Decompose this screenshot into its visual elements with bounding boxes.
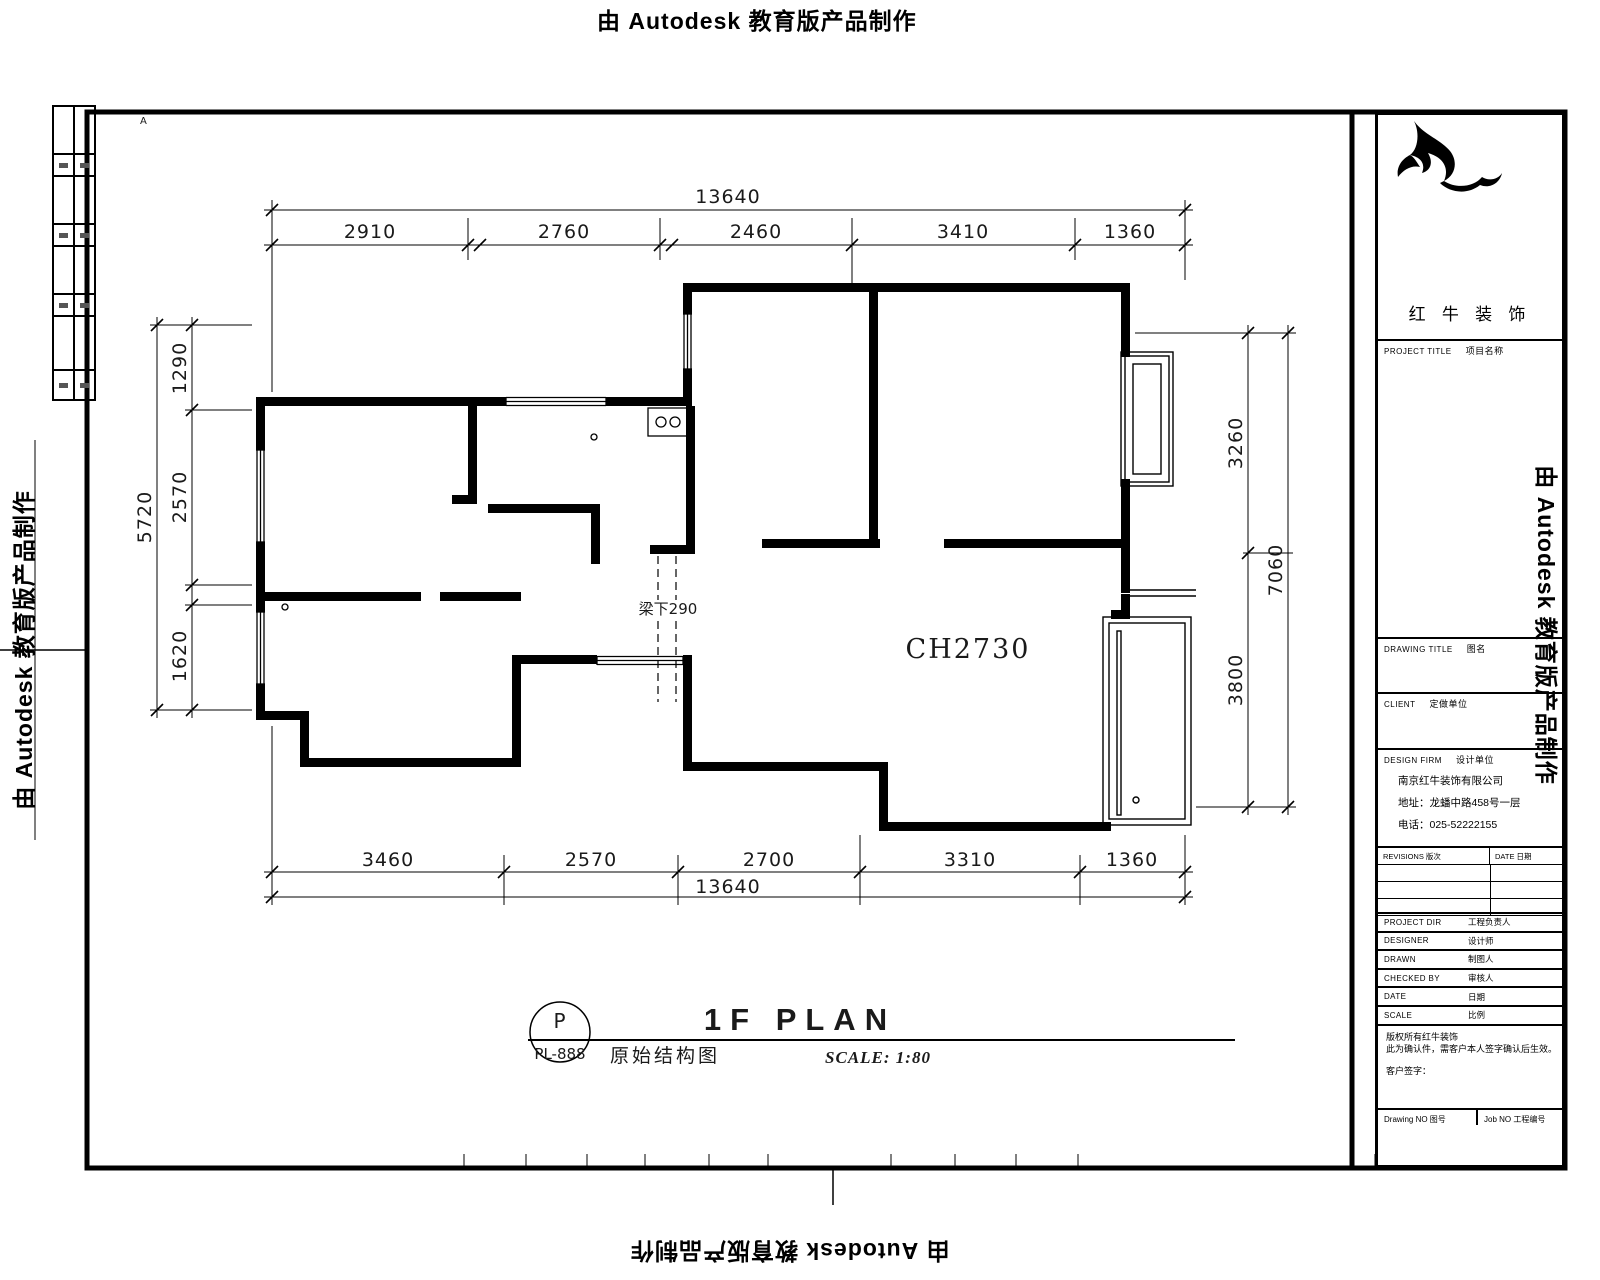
dim-right-1: 3260	[1225, 417, 1247, 469]
staff-label-en: DRAWN	[1378, 955, 1468, 964]
staff-label-zh: 工程负责人	[1468, 916, 1511, 928]
dim-left-2: 2570	[169, 471, 191, 523]
staff-label-en: SCALE	[1378, 1011, 1468, 1020]
plan-title-cn: 原始结构图	[610, 1045, 720, 1067]
staff-row-drawn: DRAWN 制图人	[1378, 951, 1562, 970]
client-signature-label: 客户签字：	[1386, 1065, 1562, 1077]
balcony	[1103, 617, 1191, 825]
revision-row	[1378, 899, 1562, 916]
staff-row-scale: SCALE 比例	[1378, 1007, 1562, 1026]
drawing-title-field: DRAWING TITLE图名	[1378, 639, 1562, 694]
revisions-header: REVISIONS 版次	[1378, 848, 1490, 864]
project-title-field: PROJECT TITLE项目名称	[1378, 341, 1562, 639]
dim-right-2: 3800	[1225, 654, 1247, 706]
dim-bottom-1: 3460	[362, 849, 414, 871]
date-header: DATE 日期	[1490, 848, 1562, 864]
project-title-label: PROJECT TITLE	[1384, 347, 1452, 356]
dim-top-1: 2910	[344, 221, 396, 243]
corner-marker-a: A	[140, 116, 147, 127]
dim-bottom-5: 1360	[1106, 849, 1158, 871]
client-label: CLIENT	[1384, 700, 1415, 709]
dim-bottom-2: 2570	[565, 849, 617, 871]
revision-row	[1378, 865, 1562, 882]
design-firm-field: DESIGN FIRM设计单位 南京红牛装饰有限公司 地址：龙蟠中路458号一层…	[1378, 750, 1562, 848]
staff-row-project-dir: PROJECT DIR 工程负责人	[1378, 914, 1562, 933]
dim-top-total: 13640	[695, 186, 760, 208]
drawing-no-label: Drawing NO 图号	[1378, 1110, 1478, 1125]
revision-row	[1378, 882, 1562, 899]
client-field: CLIENT定做单位	[1378, 694, 1562, 750]
staff-row-checked: CHECKED BY 审核人	[1378, 970, 1562, 989]
beam-label: 梁下290	[639, 600, 698, 618]
title-block: 红 牛 装 饰 PROJECT TITLE项目名称 DRAWING TITLE图…	[1375, 112, 1565, 1168]
staff-label-zh: 日期	[1468, 991, 1485, 1003]
staff-label-zh: 审核人	[1468, 972, 1494, 984]
cad-sheet: 由 Autodesk 教育版产品制作 由 Autodesk 教育版产品制作 由 …	[0, 0, 1600, 1280]
staff-label-zh: 制图人	[1468, 953, 1494, 965]
client-label-cn: 定做单位	[1429, 699, 1467, 709]
drawing-title-label: DRAWING TITLE	[1384, 645, 1453, 654]
copyright-note: 版权所有红牛装饰 此为确认件，需客户本人签字确认后生效。 客户签字：	[1378, 1026, 1562, 1110]
dim-top-2: 2760	[538, 221, 590, 243]
note-line-1: 版权所有红牛装饰	[1386, 1031, 1562, 1043]
revisions-table: REVISIONS 版次 DATE 日期	[1378, 848, 1562, 914]
drawing-title-bar: P PL-888 1F PLAN 原始结构图 SCALE: 1:80	[528, 1002, 1235, 1067]
design-firm-label-cn: 设计单位	[1456, 755, 1494, 765]
note-line-2: 此为确认件，需客户本人签字确认后生效。	[1386, 1043, 1562, 1055]
company-logo-name: 红 牛 装 饰	[1409, 300, 1532, 325]
logo-box: 红 牛 装 饰	[1378, 115, 1562, 341]
dim-left-total: 5720	[134, 491, 156, 543]
dim-left-3: 1620	[169, 630, 191, 682]
number-fields: Drawing NO 图号 Job NO 工程编号	[1378, 1110, 1562, 1125]
job-no-label: Job NO 工程编号	[1478, 1110, 1562, 1125]
staff-label-zh: 设计师	[1468, 935, 1494, 947]
dim-bottom-total: 13640	[695, 876, 760, 898]
sheet-number: PL-888	[534, 1045, 585, 1063]
dim-bottom-4: 3310	[944, 849, 996, 871]
plan-mark: P	[553, 1009, 566, 1033]
plan-title-en: 1F PLAN	[704, 1002, 896, 1037]
project-title-label-cn: 项目名称	[1466, 346, 1504, 356]
staff-label-zh: 比例	[1468, 1009, 1485, 1021]
ceiling-height-label: CH2730	[906, 634, 1031, 665]
company-phone: 电话：025-52222155	[1378, 817, 1562, 832]
dim-top-5: 1360	[1104, 221, 1156, 243]
company-address: 地址：龙蟠中路458号一层	[1378, 795, 1562, 810]
sheet-border	[0, 112, 1565, 1205]
staff-label-en: DESIGNER	[1378, 936, 1468, 945]
beam-dashed-line	[658, 556, 676, 702]
dim-top-4: 3410	[937, 221, 989, 243]
dim-right-total: 7060	[1265, 544, 1287, 596]
dim-bottom-3: 2700	[743, 849, 795, 871]
mini-revision-table	[52, 105, 96, 401]
dim-top-3: 2460	[730, 221, 782, 243]
floor-plan-canvas: A	[0, 0, 1600, 1280]
staff-row-date: DATE 日期	[1378, 988, 1562, 1007]
dim-left-1: 1290	[169, 342, 191, 394]
drawing-title-label-cn: 图名	[1467, 644, 1486, 654]
rednbull-logo-icon	[1378, 115, 1518, 215]
staff-label-en: PROJECT DIR	[1378, 918, 1468, 927]
bay-window	[1121, 352, 1196, 596]
staff-label-en: CHECKED BY	[1378, 974, 1468, 983]
design-firm-label: DESIGN FIRM	[1384, 756, 1442, 765]
staff-label-en: DATE	[1378, 992, 1468, 1001]
company-name: 南京红牛装饰有限公司	[1378, 773, 1562, 788]
plan-scale: SCALE: 1:80	[825, 1048, 931, 1067]
staff-row-designer: DESIGNER 设计师	[1378, 933, 1562, 952]
